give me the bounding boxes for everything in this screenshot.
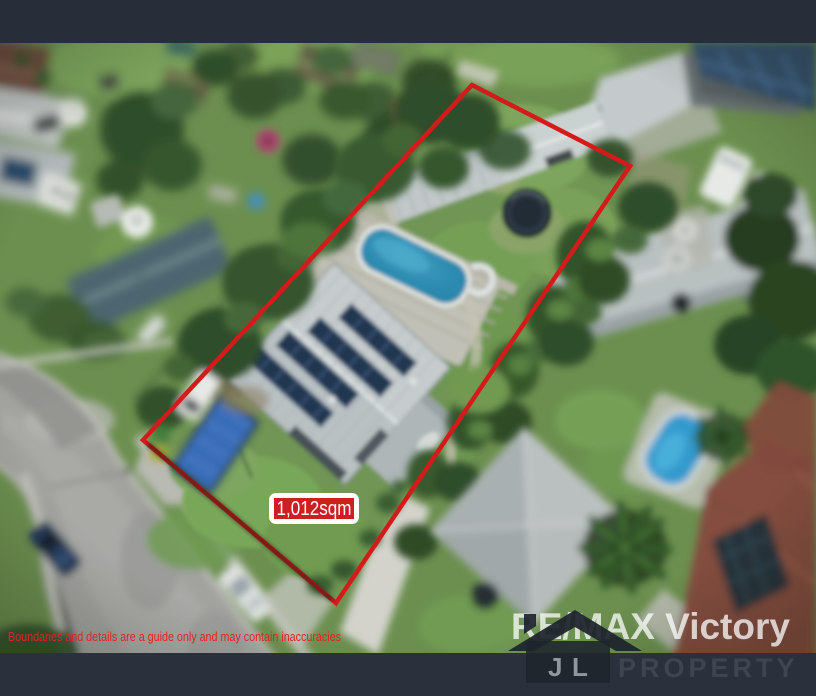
svg-text:J: J	[548, 652, 562, 682]
svg-text:Boundaries and details are a g: Boundaries and details are a guide only …	[8, 630, 341, 644]
svg-text:PROPERTY: PROPERTY	[618, 653, 799, 683]
svg-text:L: L	[572, 652, 588, 682]
svg-text:1,012sqm: 1,012sqm	[277, 498, 352, 520]
